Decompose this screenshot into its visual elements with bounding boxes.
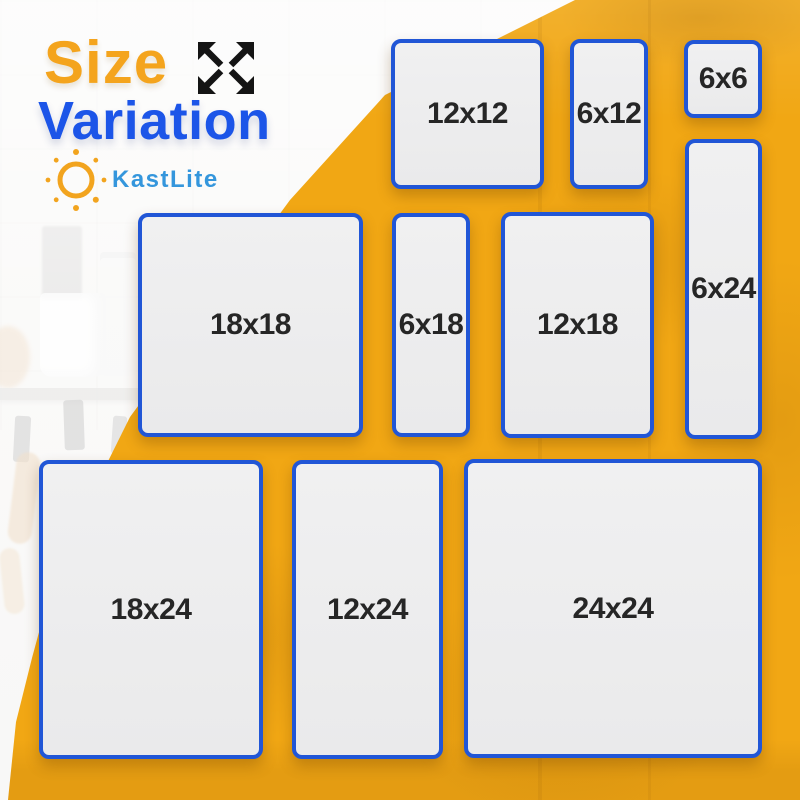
size-label: 6x24 (691, 272, 756, 306)
size-label: 12x24 (327, 593, 408, 627)
size-label: 24x24 (573, 592, 654, 626)
size-panel-12x24: 12x24 (292, 460, 443, 759)
size-panel-18x24: 18x24 (39, 460, 263, 759)
size-label: 6x6 (699, 62, 748, 96)
size-variation-infographic: Size Variation (0, 0, 800, 800)
size-label: 6x18 (399, 308, 464, 342)
sun-icon (42, 146, 110, 219)
brand-name: KastLite (112, 166, 219, 194)
size-label: 18x24 (111, 593, 192, 627)
size-panel-6x18: 6x18 (392, 213, 470, 437)
size-panel-12x12: 12x12 (391, 39, 544, 189)
size-panel-6x6: 6x6 (684, 40, 762, 118)
size-panel-6x24: 6x24 (685, 139, 762, 439)
page-title-variation: Variation (38, 90, 271, 152)
size-label: 18x18 (210, 308, 291, 342)
size-label: 12x18 (537, 308, 618, 342)
size-panel-18x18: 18x18 (138, 213, 363, 437)
size-label: 12x12 (427, 97, 508, 131)
page-title-size: Size (44, 28, 168, 97)
size-panel-6x12: 6x12 (570, 39, 648, 189)
size-panel-12x18: 12x18 (501, 212, 654, 438)
size-panel-24x24: 24x24 (464, 459, 762, 758)
size-label: 6x12 (577, 97, 642, 131)
